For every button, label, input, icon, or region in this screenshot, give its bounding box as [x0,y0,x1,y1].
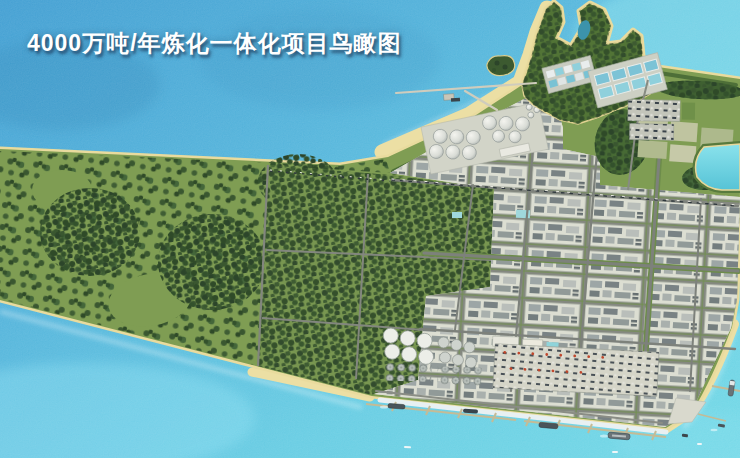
title-banner: 4000万吨/年炼化一体化项目鸟瞰图 [27,28,402,59]
moored-ship [451,98,460,102]
scene-canvas [0,0,740,458]
lagoon [696,144,740,190]
truck-loading-yard [493,344,659,397]
tree-island [487,56,515,76]
aerial-rendering-image: 4000万吨/年炼化一体化项目鸟瞰图 [0,0,740,458]
